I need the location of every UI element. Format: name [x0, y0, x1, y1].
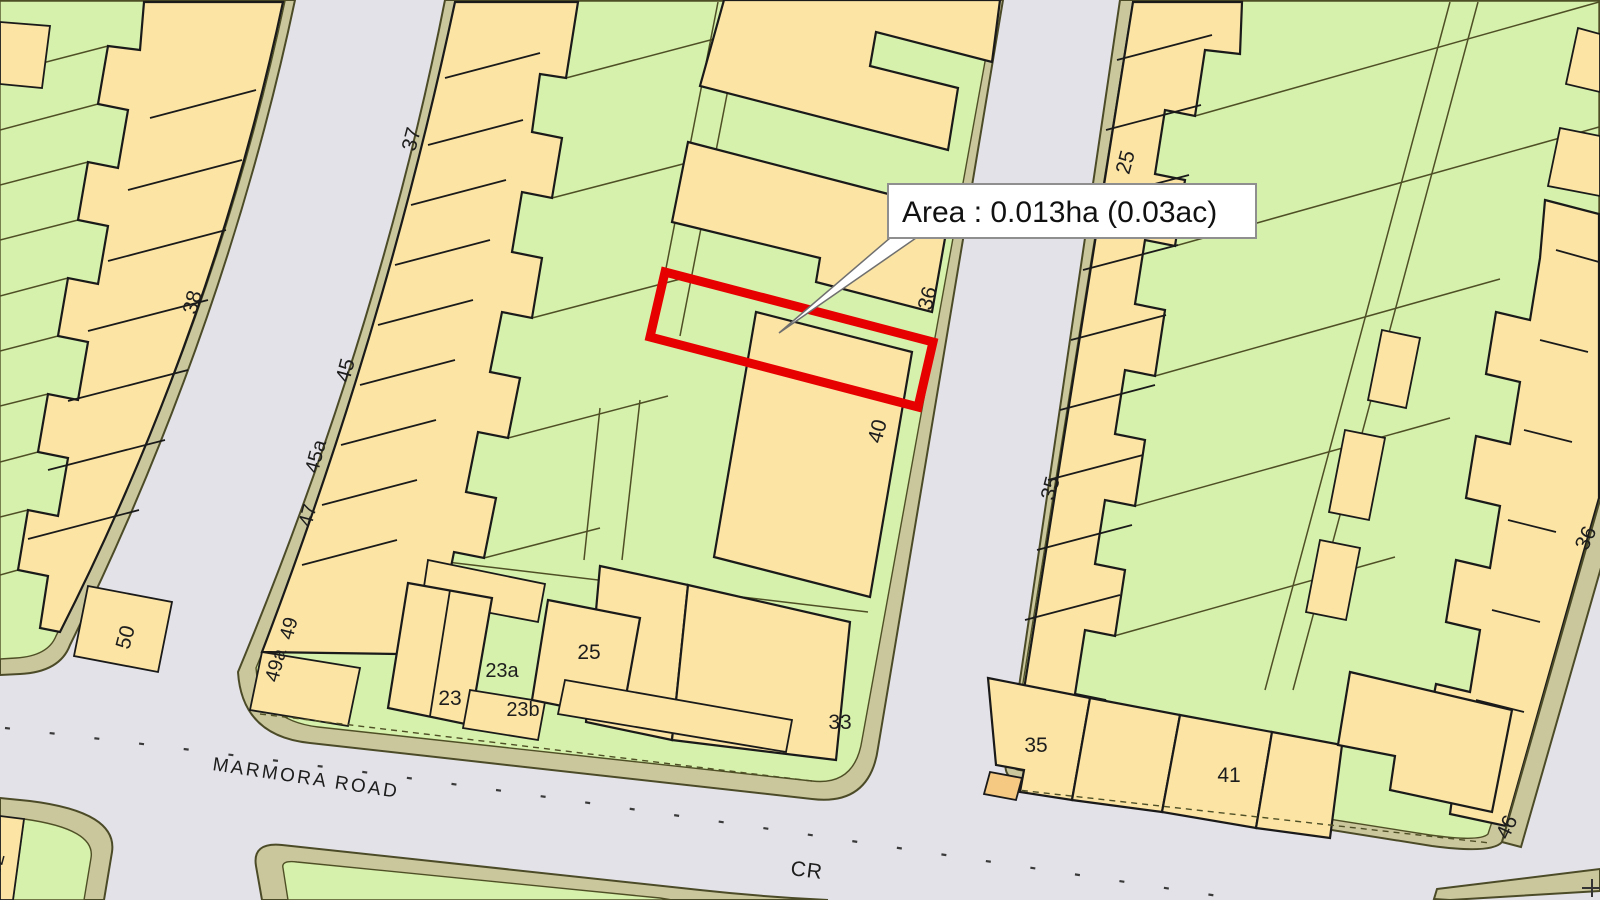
plot-number-label: 23b: [506, 699, 539, 721]
corner-shed-orange: [984, 772, 1022, 800]
plot-number-label: 23: [438, 687, 461, 710]
plot-number-label: 41: [1217, 764, 1240, 787]
plot-number-label: 25: [577, 641, 600, 664]
building-37-south: [1072, 698, 1180, 812]
road-name-label: CR: [789, 857, 824, 884]
plot-number-label: 35: [1024, 734, 1047, 757]
plot-number-label: 33: [828, 711, 851, 734]
map-viewport: Area : 0.013ha (0.03ac) 37384545a474949a…: [0, 0, 1600, 900]
building-small-nw: [0, 22, 50, 88]
plot-number-label: 23a: [485, 660, 519, 682]
annotation-text: Area : 0.013ha (0.03ac): [902, 196, 1217, 229]
map-canvas[interactable]: Area : 0.013ha (0.03ac) 37384545a474949a…: [0, 0, 1600, 900]
